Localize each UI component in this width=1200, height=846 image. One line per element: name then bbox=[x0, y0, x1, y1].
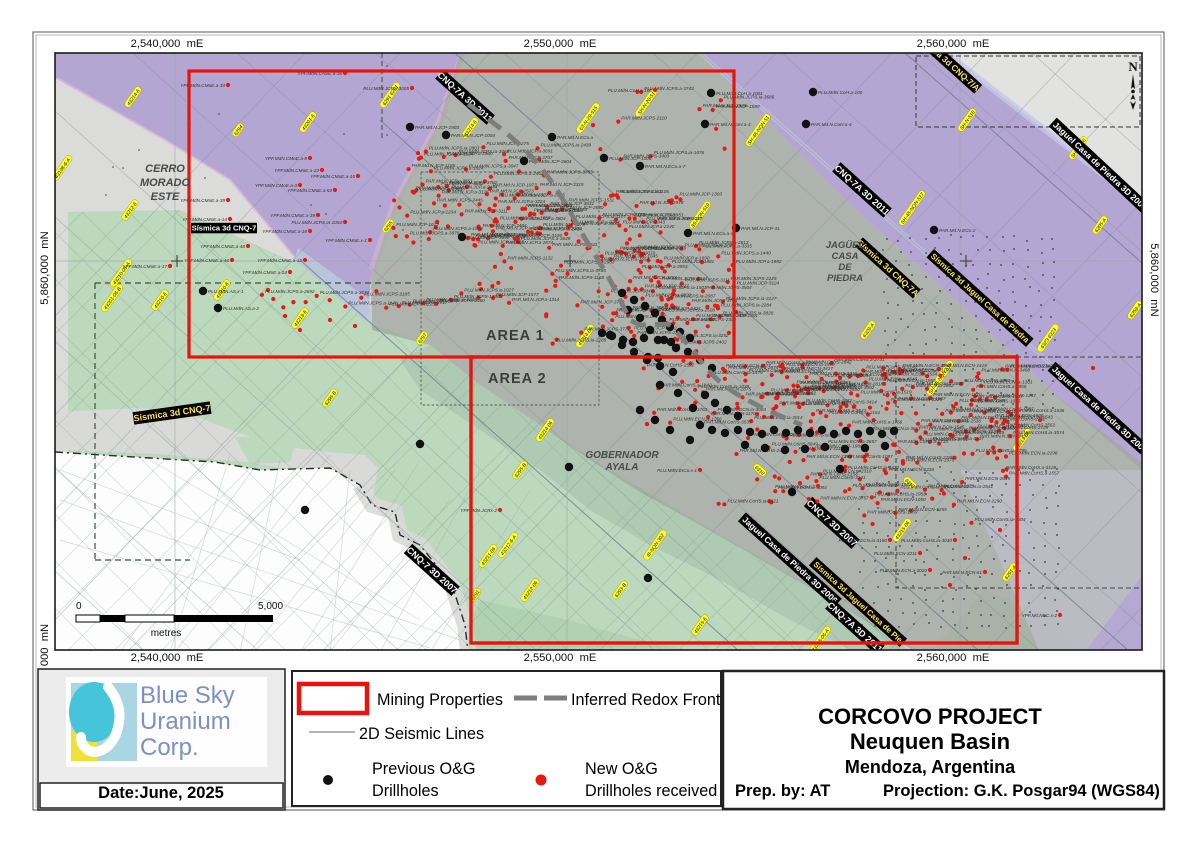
svg-text:Mining Properties: Mining Properties bbox=[377, 691, 503, 709]
svg-text:PLU.MdN.ECN-3211: PLU.MdN.ECN-3211 bbox=[874, 551, 918, 556]
svg-text:PLU.MdN.JCPS.ia-3828: PLU.MdN.JCPS.ia-3828 bbox=[723, 311, 774, 316]
svg-text:PLU.MdN.JCP.a-3953: PLU.MdN.JCP.a-3953 bbox=[642, 264, 688, 269]
svg-text:PLU.MdN.ECN.ia-3190: PLU.MdN.ECN.ia-3190 bbox=[839, 538, 888, 543]
svg-text:PAR.Md.N.CoHS-2156: PAR.Md.N.CoHS-2156 bbox=[810, 472, 858, 477]
svg-text:PAR.Md.N.JCP.a-3782: PAR.Md.N.JCP.a-3782 bbox=[450, 180, 498, 185]
svg-text:PAR.Md.N.CoHS-1097: PAR.Md.N.CoHS-1097 bbox=[845, 454, 893, 459]
svg-text:PLU.MdN.JCPS.a-2462: PLU.MdN.JCPS.a-2462 bbox=[494, 171, 544, 176]
svg-text:PLU.MdN.JCPS.a-1440: PLU.MdN.JCPS.a-1440 bbox=[721, 250, 771, 255]
svg-text:PLU.MdN.JCP-1303: PLU.MdN.JCP-1303 bbox=[680, 191, 723, 196]
svg-text:PLU.MdN.CoHS-1056: PLU.MdN.CoHS-1056 bbox=[974, 399, 1021, 404]
svg-text:PLU.MdN.JCPS.ia-2284: PLU.MdN.JCPS.ia-2284 bbox=[721, 302, 772, 307]
svg-text:PLU.MdN.ECN.ia-1345: PLU.MdN.ECN.ia-1345 bbox=[978, 424, 1027, 429]
svg-text:Corp.: Corp. bbox=[140, 734, 199, 761]
svg-text:PAR.MdN.N.ECN-3485: PAR.MdN.N.ECN-3485 bbox=[961, 415, 1010, 420]
svg-text:PAR.MdN.JCPS-2445: PAR.MdN.JCPS-2445 bbox=[437, 197, 483, 202]
svg-text:PAR.MdN.JCPS-3111: PAR.MdN.JCPS-3111 bbox=[685, 278, 730, 283]
svg-text:Mendoza, Argentina: Mendoza, Argentina bbox=[845, 757, 1016, 777]
svg-text:PAR.MdN.CoHS.a-3128: PAR.MdN.CoHS.a-3128 bbox=[1006, 465, 1057, 470]
svg-text:PAR.Md.N.CoHS-3321: PAR.Md.N.CoHS-3321 bbox=[921, 418, 969, 423]
svg-text:YPF.MdN.CMoE.a-24: YPF.MdN.CMoE.a-24 bbox=[242, 270, 287, 275]
svg-text:PAR.Md.N.JCP-1004: PAR.Md.N.JCP-1004 bbox=[451, 133, 495, 138]
svg-text:PAR.MdN.CoHS.a-1636: PAR.MdN.CoHS.a-1636 bbox=[1014, 408, 1065, 413]
svg-text:PAR.Md.N.JCP-3027: PAR.Md.N.JCP-3027 bbox=[645, 283, 689, 288]
svg-text:PAR.Md.N.JCP-2315: PAR.Md.N.JCP-2315 bbox=[540, 182, 584, 187]
svg-text:PAR.Md.N.CoH.a-4: PAR.Md.N.CoH.a-4 bbox=[710, 122, 751, 127]
svg-text:AREA 2: AREA 2 bbox=[488, 371, 547, 387]
svg-text:PAR.Md.N.CoHS-3092: PAR.Md.N.CoHS-3092 bbox=[827, 385, 875, 390]
svg-text:New O&G: New O&G bbox=[585, 760, 658, 778]
svg-text:PLU.MdN.JCPS.ia-3785: PLU.MdN.JCPS.ia-3785 bbox=[555, 268, 606, 273]
svg-text:YPF.MdN.CMoE.a-53: YPF.MdN.CMoE.a-53 bbox=[287, 188, 332, 193]
svg-text:PLU.MdN.CoHS-2842: PLU.MdN.CoHS-2842 bbox=[806, 359, 853, 364]
svg-text:PLU.MdN.CoHS.ia-3795: PLU.MdN.CoHS.ia-3795 bbox=[976, 448, 1027, 453]
svg-text:PLU.MdN.AS.a-2: PLU.MdN.AS.a-2 bbox=[223, 306, 259, 311]
svg-text:2,550,000 mE: 2,550,000 mE bbox=[524, 38, 597, 50]
svg-text:PLU.MdN.CoHS.ia-3574: PLU.MdN.CoHS.ia-3574 bbox=[1013, 430, 1064, 435]
svg-text:PLU.MdN.JCPS.ia-1054: PLU.MdN.JCPS.ia-1054 bbox=[291, 220, 342, 225]
svg-text:PLU.MdN.EICo.s-1: PLU.MdN.EICo.s-1 bbox=[657, 468, 697, 473]
svg-text:PLU.MdN.CoHS-2779: PLU.MdN.CoHS-2779 bbox=[923, 432, 970, 437]
svg-text:PAR.Md.N.ECN-81: PAR.Md.N.ECN-81 bbox=[942, 570, 982, 575]
svg-text:PAR.Md.N.JCP-1973: PAR.Md.N.JCP-1973 bbox=[493, 183, 537, 188]
svg-text:PLU.MdN.JCP.a-2240: PLU.MdN.JCP.a-2240 bbox=[629, 224, 675, 229]
svg-text:PLU.MdN.CoHS.ia-1956: PLU.MdN.CoHS.ia-1956 bbox=[875, 491, 926, 496]
svg-text:0: 0 bbox=[76, 601, 82, 612]
svg-text:CORCOVO PROJECT: CORCOVO PROJECT bbox=[818, 704, 1042, 729]
svg-text:YPF.MdN.CMoE.a-19: YPF.MdN.CMoE.a-19 bbox=[270, 213, 315, 218]
svg-text:YPF.MdN.CMoE.a-39: YPF.MdN.CMoE.a-39 bbox=[180, 198, 225, 203]
svg-text:PLU.MdN.CoHS.ia-2225: PLU.MdN.CoHS.ia-2225 bbox=[891, 397, 942, 402]
svg-text:PLU.MdN.JCPS-1390: PLU.MdN.JCPS-1390 bbox=[454, 294, 500, 299]
svg-text:PLU.MdN.JCP.a-1450: PLU.MdN.JCP.a-1450 bbox=[669, 317, 715, 322]
svg-text:YPF.MdN.CMoE.a-8: YPF.MdN.CMoE.a-8 bbox=[265, 156, 308, 161]
svg-text:PAR.Md.N.JCP-3109: PAR.Md.N.JCP-3109 bbox=[518, 233, 562, 238]
svg-text:PLU.MdN.CoHS-2372: PLU.MdN.CoHS-2372 bbox=[806, 398, 853, 403]
svg-text:PAR.Md.N.ECN-3677: PAR.Md.N.ECN-3677 bbox=[726, 363, 771, 368]
svg-text:Uranium: Uranium bbox=[140, 708, 231, 735]
svg-text:PLU.MdN.CoH.a-100: PLU.MdN.CoH.a-100 bbox=[608, 88, 653, 93]
svg-text:PLU.MdN.CoHS.ia-2161: PLU.MdN.CoHS.ia-2161 bbox=[829, 410, 880, 415]
svg-text:PIEDRA: PIEDRA bbox=[827, 273, 863, 284]
svg-text:PAR.Md.N.JCP.a-1654: PAR.Md.N.JCP.a-1654 bbox=[602, 257, 650, 262]
svg-text:PAR.Md.N.JCP-3979: PAR.Md.N.JCP-3979 bbox=[642, 246, 686, 251]
svg-text:PLU.MdN.JCP.a-1992: PLU.MdN.JCP.a-1992 bbox=[736, 259, 782, 264]
svg-text:PLU.MdN.JCP-1275: PLU.MdN.JCP-1275 bbox=[486, 141, 529, 146]
svg-text:2,560,000 mE: 2,560,000 mE bbox=[917, 652, 990, 664]
svg-text:PAR.Md.N.ECN-2336: PAR.Md.N.ECN-2336 bbox=[889, 467, 934, 472]
svg-text:PAR.MdN.N.ECN-1290: PAR.MdN.N.ECN-1290 bbox=[775, 369, 824, 374]
svg-text:YPF.MdN.CMoE.a-15: YPF.MdN.CMoE.a-15 bbox=[310, 174, 355, 179]
svg-text:PAR.Md.N.JCP-1903: PAR.Md.N.JCP-1903 bbox=[415, 125, 459, 130]
svg-text:AREA 1: AREA 1 bbox=[486, 328, 545, 344]
svg-text:YPF.MdN.CMoE.a-46: YPF.MdN.CMoE.a-46 bbox=[184, 258, 229, 263]
svg-text:PLU.MdN.ECN.ia-3695: PLU.MdN.ECN.ia-3695 bbox=[764, 391, 813, 396]
svg-text:ESTE: ESTE bbox=[151, 191, 180, 203]
svg-text:PLU.MdN.JCPS.ia-2285: PLU.MdN.JCPS.ia-2285 bbox=[556, 338, 607, 343]
svg-text:PAR.Md.N.JCP.a-2414: PAR.Md.N.JCP.a-2414 bbox=[535, 226, 583, 231]
svg-text:Previous O&G: Previous O&G bbox=[372, 760, 475, 778]
svg-text:PLU.MdN.JCPS.a-2706: PLU.MdN.JCPS.a-2706 bbox=[685, 243, 735, 248]
svg-text:PAR.Md.N.ECN-2290: PAR.Md.N.ECN-2290 bbox=[957, 499, 1002, 504]
svg-text:PLU.MdN.CoHS.ia-3030: PLU.MdN.CoHS.ia-3030 bbox=[901, 538, 952, 543]
svg-text:5,000: 5,000 bbox=[258, 601, 283, 612]
svg-text:PAR.Md.N.JCP.a-1314: PAR.Md.N.JCP.a-1314 bbox=[512, 297, 560, 302]
svg-text:YPF.MdN.CMoE.a-34: YPF.MdN.CMoE.a-34 bbox=[180, 83, 225, 88]
svg-text:2,550,000 mE: 2,550,000 mE bbox=[524, 652, 597, 664]
svg-text:PLU.MdN.JCP-3124: PLU.MdN.JCP-3124 bbox=[737, 280, 780, 285]
svg-text:PAR.Md.N.ECN-2615: PAR.Md.N.ECN-2615 bbox=[965, 476, 1010, 481]
svg-text:PAR.MdN.JCPS-1132: PAR.MdN.JCPS-1132 bbox=[507, 255, 553, 260]
svg-text:PAR.Md.N.JCP-2573: PAR.Md.N.JCP-2573 bbox=[490, 188, 534, 193]
svg-text:Drillholes received: Drillholes received bbox=[585, 782, 717, 800]
svg-text:5,860,000 mN: 5,860,000 mN bbox=[1148, 243, 1160, 316]
svg-text:PAR.MdN.N.ECN-3757: PAR.MdN.N.ECN-3757 bbox=[820, 496, 869, 501]
svg-text:PAR.Md.N.ECo.a-3: PAR.Md.N.ECo.a-3 bbox=[693, 231, 734, 236]
svg-text:PAR.Md.N.JCP-3111: PAR.Md.N.JCP-3111 bbox=[465, 208, 509, 213]
svg-text:PAR.MdN.CoHS.a-1969: PAR.MdN.CoHS.a-1969 bbox=[867, 510, 918, 515]
svg-text:PAR.Md.N.ECo-2: PAR.Md.N.ECo-2 bbox=[939, 228, 976, 233]
svg-text:AYALA: AYALA bbox=[605, 462, 639, 473]
svg-text:YPF.MdN.JCRx-2: YPF.MdN.JCRx-2 bbox=[460, 508, 497, 513]
svg-text:PLU.MdN.JCP.a-1234: PLU.MdN.JCP.a-1234 bbox=[410, 210, 456, 215]
svg-text:PLU.MdN.CoHS.ia-1039: PLU.MdN.CoHS.ia-1039 bbox=[698, 384, 749, 389]
svg-text:PAR.Md.N.JCP-3925: PAR.Md.N.JCP-3925 bbox=[703, 103, 747, 108]
svg-text:PAR.Md.N.CoHS-2592: PAR.Md.N.CoHS-2592 bbox=[647, 362, 695, 367]
svg-text:PLU.MdN.ECN.a-3020: PLU.MdN.ECN.a-3020 bbox=[880, 568, 928, 573]
svg-text:PLU.MdN.CoH.a-100: PLU.MdN.CoH.a-100 bbox=[818, 90, 863, 95]
svg-text:PLU.MdN.CoHS.ia-1821: PLU.MdN.CoHS.ia-1821 bbox=[727, 498, 778, 503]
svg-text:2,560,000 mE: 2,560,000 mE bbox=[917, 38, 990, 50]
svg-text:PLU.MdN.JCP-1006: PLU.MdN.JCP-1006 bbox=[609, 156, 652, 161]
svg-text:PAR.MdN.CoHS.a-1763: PAR.MdN.CoHS.a-1763 bbox=[657, 407, 708, 412]
svg-text:PLU.MdN.CoHS-3070: PLU.MdN.CoHS-3070 bbox=[928, 484, 975, 489]
svg-text:PAR.Md.N.JCP-3037: PAR.Md.N.JCP-3037 bbox=[658, 216, 702, 221]
svg-text:YPF.MdN.CMoE.x-1: YPF.MdN.CMoE.x-1 bbox=[325, 238, 367, 243]
svg-text:Inferred Redox Front: Inferred Redox Front bbox=[571, 691, 721, 709]
svg-text:PLU.MdN.JCPS.a-2692: PLU.MdN.JCPS.a-2692 bbox=[265, 289, 315, 294]
svg-text:JAGÜEL: JAGÜEL bbox=[826, 240, 865, 251]
svg-text:PLU.MdN.JCPS.a-3978: PLU.MdN.JCPS.a-3978 bbox=[410, 230, 460, 235]
svg-text:PAR.Md.N.JCP-31: PAR.Md.N.JCP-31 bbox=[741, 226, 780, 231]
svg-text:CERRO: CERRO bbox=[145, 163, 185, 175]
svg-text:PAR.Md.N.CoHS-3537: PAR.Md.N.CoHS-3537 bbox=[704, 420, 752, 425]
svg-text:PAR.MdN.N.ECN-1975: PAR.MdN.N.ECN-1975 bbox=[906, 458, 955, 463]
svg-text:PAR.MdN.CoHS.a-1766: PAR.MdN.CoHS.a-1766 bbox=[852, 420, 903, 425]
svg-text:PAR.Md.N.ECo.a-7: PAR.Md.N.ECo.a-7 bbox=[645, 164, 686, 169]
svg-text:000 mN: 000 mN bbox=[39, 624, 51, 666]
svg-text:PLU.MdN.JCP-3040: PLU.MdN.JCP-3040 bbox=[467, 235, 510, 240]
svg-text:PAR.Md.N.ECo.a: PAR.Md.N.ECo.a bbox=[557, 135, 594, 140]
svg-text:Neuquen Basin: Neuquen Basin bbox=[850, 729, 1010, 754]
svg-text:PLU.MdN.CoH.a-1001: PLU.MdN.CoH.a-1001 bbox=[716, 91, 763, 96]
svg-text:PAR.MdN.CoHS.a-1733: PAR.MdN.CoHS.a-1733 bbox=[898, 439, 949, 444]
svg-text:PLU.MdN.JCPS.ia-3070: PLU.MdN.JCPS.ia-3070 bbox=[605, 250, 656, 255]
svg-text:PLU.MdN.JCPS.ia-2087: PLU.MdN.JCPS.ia-2087 bbox=[665, 294, 716, 299]
svg-text:MORADO: MORADO bbox=[140, 177, 191, 189]
svg-text:PAR.MdN.JCPS-2163: PAR.MdN.JCPS-2163 bbox=[616, 189, 662, 194]
svg-text:PAR.MdN.JCPS-1168: PAR.MdN.JCPS-1168 bbox=[559, 275, 605, 280]
svg-text:PAR.Md.N.JCP.a-3804: PAR.Md.N.JCP.a-3804 bbox=[518, 216, 566, 221]
svg-text:5,860,000 mN: 5,860,000 mN bbox=[39, 231, 51, 304]
svg-text:YPF.Md.NEC.x-2: YPF.Md.NEC.x-2 bbox=[1022, 613, 1058, 618]
svg-text:PAR.Md.N.JCP-1195: PAR.Md.N.JCP-1195 bbox=[412, 163, 456, 168]
svg-text:Date:June, 2025: Date:June, 2025 bbox=[98, 784, 224, 802]
svg-text:PLU.MdN.CoHS-2077: PLU.MdN.CoHS-2077 bbox=[888, 368, 935, 373]
svg-text:PLU.MdN.JCP.a-3256: PLU.MdN.JCP.a-3256 bbox=[537, 208, 583, 213]
svg-text:CASA: CASA bbox=[832, 251, 859, 262]
svg-text:YPF.MdN.CMoE.a-23: YPF.MdN.CMoE.a-23 bbox=[274, 168, 319, 173]
svg-text:PAR.Md.N.JCP-3484: PAR.Md.N.JCP-3484 bbox=[483, 223, 527, 228]
svg-text:PAR.Md.N.JCP-2978: PAR.Md.N.JCP-2978 bbox=[640, 200, 684, 205]
svg-text:Prep. by: AT: Prep. by: AT bbox=[735, 782, 830, 800]
svg-text:YPF.MdN.CMoE.a-17: YPF.MdN.CMoE.a-17 bbox=[122, 264, 167, 269]
svg-text:PAR.MdN.JCPS-3771: PAR.MdN.JCPS-3771 bbox=[584, 327, 630, 332]
svg-text:PLU.MdN.JCP-1577: PLU.MdN.JCP-1577 bbox=[496, 292, 539, 297]
svg-text:Projection: G.K. Posgar94 (WGS: Projection: G.K. Posgar94 (WGS84) bbox=[883, 782, 1160, 800]
svg-text:PLU.MdN.JCPS-2185: PLU.MdN.JCPS-2185 bbox=[364, 292, 410, 297]
svg-text:PLU.MdN.ECN.ia-1562: PLU.MdN.ECN.ia-1562 bbox=[797, 380, 846, 385]
svg-text:N: N bbox=[1128, 59, 1138, 74]
svg-text:2D Seismic Lines: 2D Seismic Lines bbox=[359, 725, 484, 743]
svg-text:PAR.Md.N.CoH.a-4: PAR.Md.N.CoH.a-4 bbox=[811, 122, 852, 127]
svg-text:PAR.MdN.JCPS-2110: PAR.MdN.JCPS-2110 bbox=[621, 116, 667, 121]
svg-text:PLU.MdN.JCPS.a-1027: PLU.MdN.JCPS.a-1027 bbox=[464, 287, 514, 292]
svg-text:Sísmica 3d CNQ-7: Sísmica 3d CNQ-7 bbox=[192, 224, 257, 233]
svg-text:PLU.MdN.CoHS-3882: PLU.MdN.CoHS-3882 bbox=[964, 378, 1011, 383]
svg-text:PAR.Md.N.ECN-1170: PAR.Md.N.ECN-1170 bbox=[711, 411, 756, 416]
svg-text:PLU.MdN.JCPS.a-2508: PLU.MdN.JCPS.a-2508 bbox=[666, 308, 716, 313]
svg-text:PLU.MdN.JCPS.ia-3252: PLU.MdN.JCPS.ia-3252 bbox=[678, 333, 729, 338]
svg-text:PLU.MdN.ECN.ia-2882: PLU.MdN.ECN.ia-2882 bbox=[905, 383, 954, 388]
svg-text:PLU.MdN.AS.x-1: PLU.MdN.AS.x-1 bbox=[208, 289, 244, 294]
svg-text:GOBERNADOR: GOBERNADOR bbox=[585, 450, 659, 461]
svg-text:metres: metres bbox=[151, 628, 182, 639]
svg-text:PLU.MdN.JCP.a-2663: PLU.MdN.JCP.a-2663 bbox=[478, 240, 524, 245]
svg-text:2,540,000 mE: 2,540,000 mE bbox=[131, 38, 204, 50]
svg-text:DE: DE bbox=[838, 262, 852, 273]
svg-text:PAR.MdN.JCPS-3504: PAR.MdN.JCPS-3504 bbox=[706, 285, 752, 290]
svg-text:PLU.MdN.EICo.x-2: PLU.MdN.EICo.x-2 bbox=[775, 484, 815, 489]
svg-text:YPF.MdN.CMoE.a-12: YPF.MdN.CMoE.a-12 bbox=[257, 258, 302, 263]
svg-text:Blue Sky: Blue Sky bbox=[140, 682, 235, 709]
svg-text:PLU.MdN.JCPS.a-1584: PLU.MdN.JCPS.a-1584 bbox=[424, 152, 474, 157]
svg-text:PLU.MdN.ECN.ia-1959: PLU.MdN.ECN.ia-1959 bbox=[887, 378, 936, 383]
svg-text:YPF.MdN.CMoE.a-48: YPF.MdN.CMoE.a-48 bbox=[200, 244, 245, 249]
svg-text:2,540,000 mE: 2,540,000 mE bbox=[131, 652, 204, 664]
svg-text:PAR.MdN.CoHS.a-2569: PAR.MdN.CoHS.a-2569 bbox=[976, 384, 1027, 389]
svg-text:PLU.MdN.JCPS.a-3047: PLU.MdN.JCPS.a-3047 bbox=[469, 163, 519, 168]
svg-text:PAR.MdN.JCPS-3355: PAR.MdN.JCPS-3355 bbox=[547, 169, 593, 174]
svg-text:YPF.MdN.CMoE.a-18: YPF.MdN.CMoE.a-18 bbox=[262, 229, 307, 234]
svg-text:PLU.MdN.JCP.a-3005: PLU.MdN.JCP.a-3005 bbox=[363, 86, 409, 91]
svg-text:PAR.MdN.N.ECN-3493: PAR.MdN.N.ECN-3493 bbox=[843, 372, 892, 377]
svg-text:PAR.Md.N.ECN-1050: PAR.Md.N.ECN-1050 bbox=[881, 497, 926, 502]
svg-text:PLU.MdN.JCPS.a-3671: PLU.MdN.JCPS.a-3671 bbox=[320, 290, 370, 295]
svg-text:PLU.MdN.JCPS.ia-2439: PLU.MdN.JCPS.ia-2439 bbox=[541, 142, 592, 147]
svg-text:Drillholes: Drillholes bbox=[372, 782, 439, 800]
